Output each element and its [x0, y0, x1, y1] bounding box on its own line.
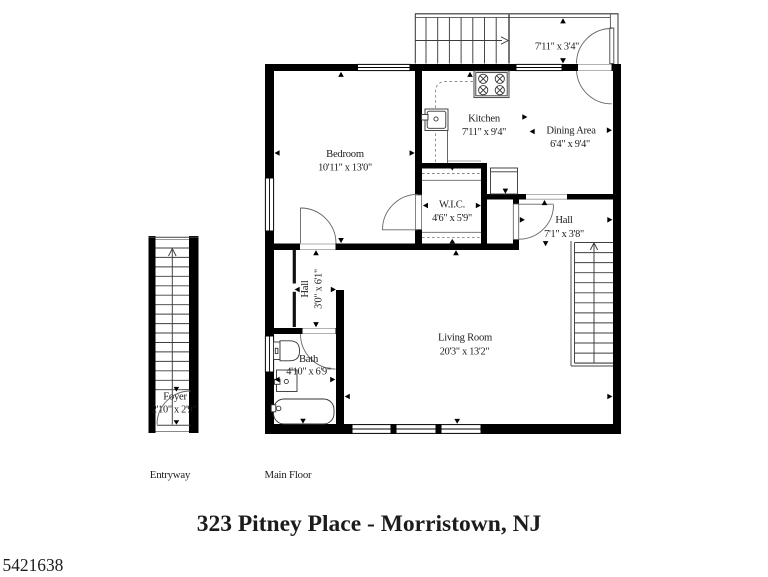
svg-text:7'1" x 3'8": 7'1" x 3'8"	[544, 229, 584, 240]
svg-text:Hall: Hall	[555, 215, 573, 226]
svg-text:323 Pitney Place - Morristown,: 323 Pitney Place - Morristown, NJ	[197, 511, 542, 537]
svg-text:Bath: Bath	[299, 354, 319, 365]
svg-text:Bedroom: Bedroom	[326, 149, 365, 160]
svg-text:Main Floor: Main Floor	[265, 469, 312, 481]
svg-text:20'3" x 13'2": 20'3" x 13'2"	[440, 347, 490, 358]
svg-text:4'10" x 6'9": 4'10" x 6'9"	[286, 367, 331, 378]
svg-text:Living Room: Living Room	[438, 333, 493, 344]
svg-text:5421638: 5421638	[3, 555, 64, 575]
svg-text:10'11" x 13'0": 10'11" x 13'0"	[318, 163, 372, 174]
svg-text:Dining Area: Dining Area	[546, 126, 596, 137]
svg-text:3'0" x 6'1": 3'0" x 6'1"	[314, 269, 325, 309]
svg-text:Kitchen: Kitchen	[468, 114, 501, 125]
svg-text:7'11" x 3'4": 7'11" x 3'4"	[535, 41, 579, 52]
svg-text:7'11" x 9'4": 7'11" x 9'4"	[462, 127, 506, 138]
svg-text:6'4" x 9'4": 6'4" x 9'4"	[550, 139, 590, 150]
svg-text:Hall: Hall	[300, 280, 311, 298]
svg-text:4'6" x 5'9": 4'6" x 5'9"	[432, 213, 472, 224]
svg-text:Entryway: Entryway	[150, 469, 191, 481]
svg-text:W.I.C.: W.I.C.	[439, 200, 465, 211]
